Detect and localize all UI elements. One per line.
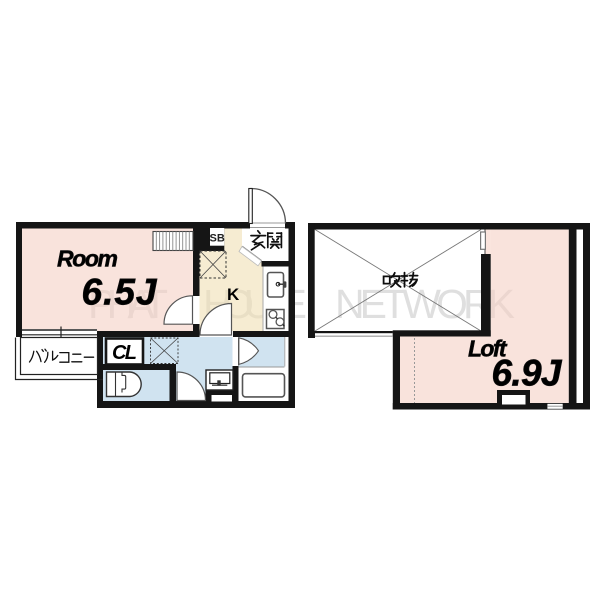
svg-text:Room: Room: [57, 246, 118, 272]
svg-text:CL: CL: [112, 342, 137, 364]
svg-text:K: K: [227, 285, 240, 304]
svg-text:6.9J: 6.9J: [492, 353, 563, 394]
svg-text:6.5J: 6.5J: [82, 272, 158, 313]
svg-text:SB: SB: [210, 233, 225, 245]
